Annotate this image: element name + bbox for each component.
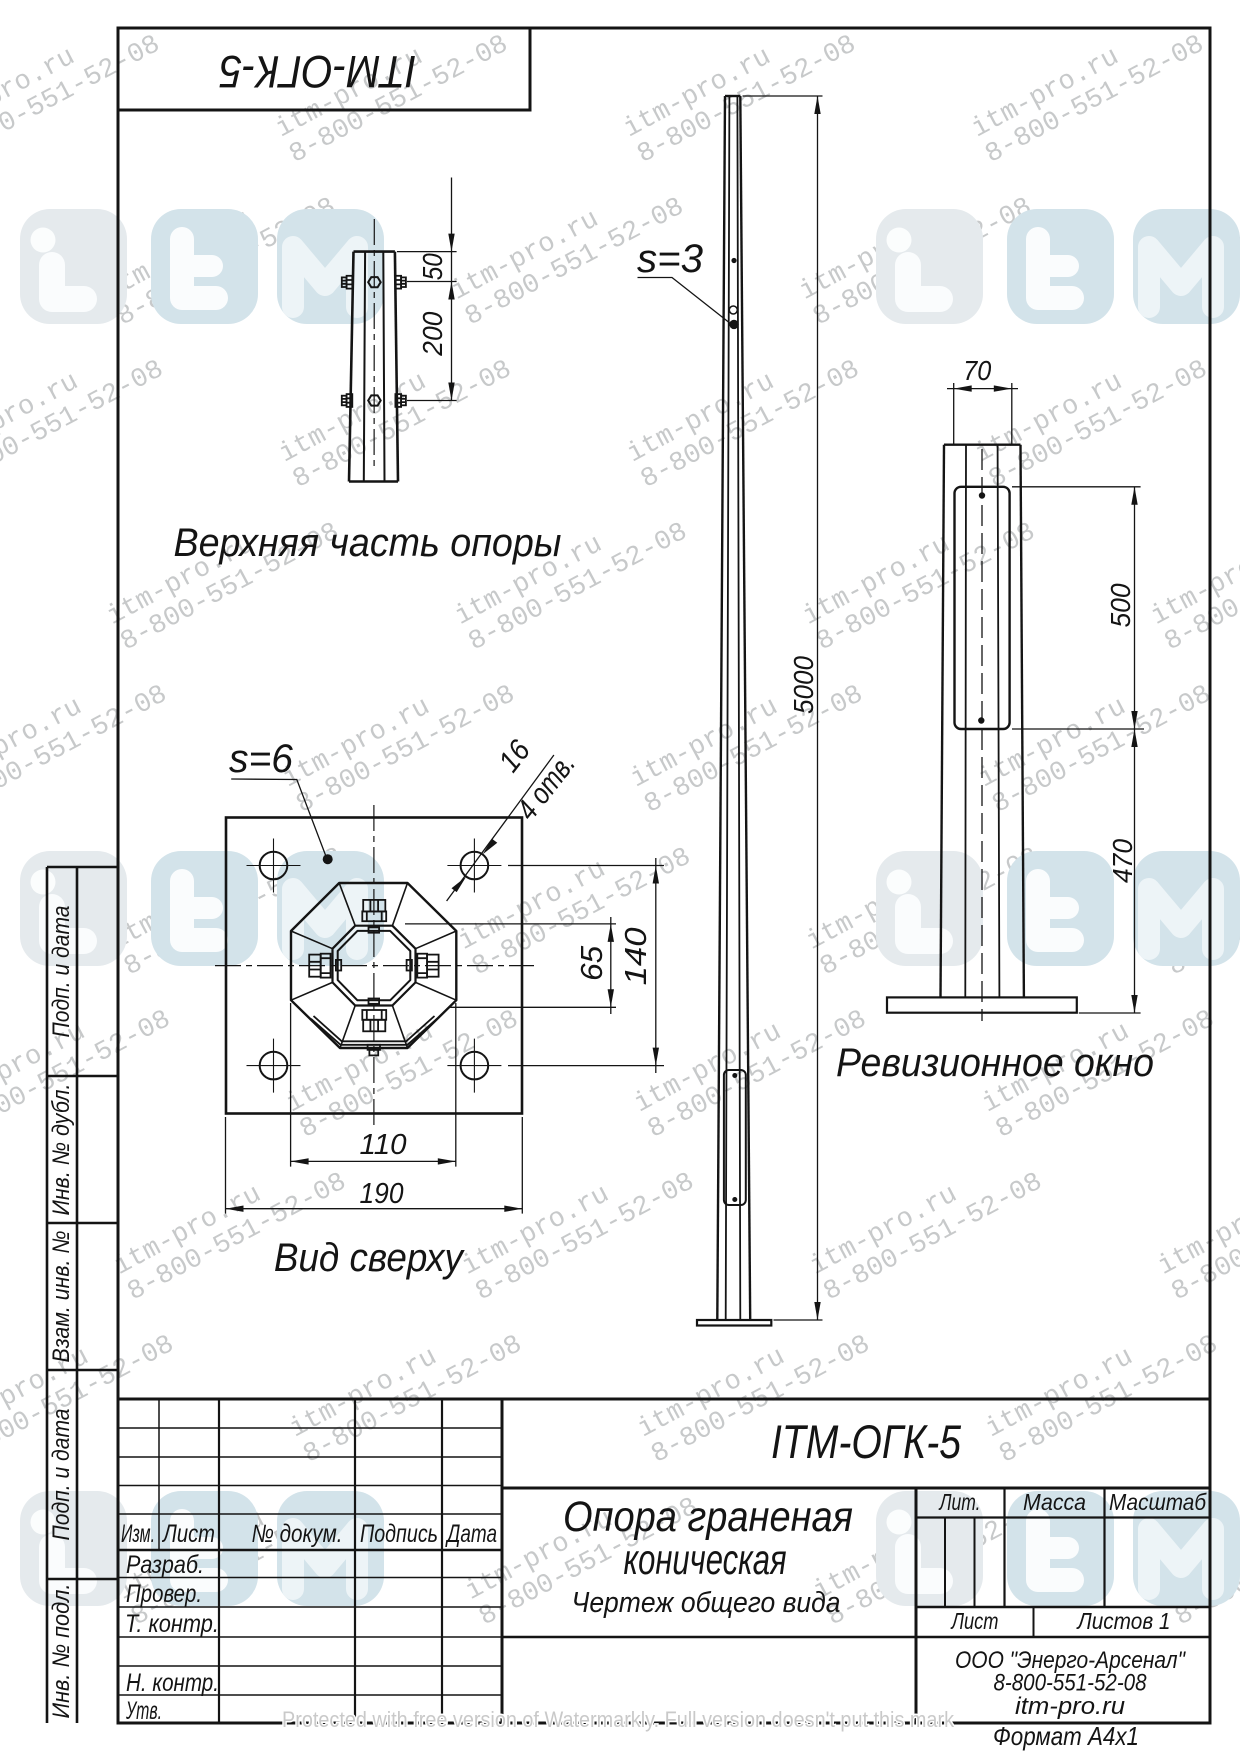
svg-text:Формат А4х1: Формат А4х1 [993,1721,1139,1751]
svg-text:s=3: s=3 [637,237,703,281]
svg-text:Лист: Лист [950,1608,999,1634]
svg-text:Подп. и дата: Подп. и дата [48,906,75,1038]
svg-text:Изм.: Изм. [121,1520,155,1548]
svg-text:200: 200 [417,311,448,356]
svg-text:190: 190 [360,1178,404,1210]
svg-text:Листов 1: Листов 1 [1076,1608,1171,1634]
svg-text:Т. контр.: Т. контр. [125,1610,219,1638]
svg-text:470: 470 [1107,839,1138,883]
svg-text:Protected with free version of: Protected with free version of Watermark… [282,1707,955,1732]
svg-text:65: 65 [574,945,609,981]
svg-text:Лит.: Лит. [938,1489,981,1515]
svg-text:Вид сверху: Вид сверху [274,1236,466,1280]
svg-text:110: 110 [360,1129,407,1161]
svg-text:Утв.: Утв. [125,1697,162,1725]
svg-text:140: 140 [618,927,653,985]
svg-text:коническая: коническая [624,1536,787,1584]
svg-text:70: 70 [963,355,991,386]
svg-text:Опора граненая: Опора граненая [563,1493,853,1541]
svg-text:№ докум.: № докум. [252,1520,343,1548]
svg-text:500: 500 [1105,583,1136,627]
svg-text:Разраб.: Разраб. [126,1551,204,1579]
svg-text:Инв. № дубл.: Инв. № дубл. [48,1084,75,1216]
svg-text:ITM-ОГК-5: ITM-ОГК-5 [219,46,417,97]
svg-text:Провер.: Провер. [126,1580,202,1608]
svg-text:Н. контр.: Н. контр. [126,1669,219,1697]
svg-text:5000: 5000 [788,656,819,714]
svg-text:Инв. № подл.: Инв. № подл. [48,1584,75,1719]
svg-text:Взам. инв. №: Взам. инв. № [48,1231,75,1363]
svg-text:Чертеж общего вида: Чертеж общего вида [572,1587,841,1619]
svg-text:ITM-ОГК-5: ITM-ОГК-5 [771,1415,962,1468]
svg-text:Дата: Дата [445,1520,497,1548]
svg-text:50: 50 [417,253,448,280]
svg-text:Подп. и дата: Подп. и дата [48,1409,75,1541]
svg-text:Масштаб: Масштаб [1109,1489,1207,1515]
svg-text:s=6: s=6 [229,737,294,781]
svg-text:Масса: Масса [1023,1489,1086,1515]
svg-text:itm-pro.ru: itm-pro.ru [1015,1693,1125,1720]
svg-text:Подпись: Подпись [360,1520,438,1548]
svg-text:Ревизионное окно: Ревизионное окно [836,1041,1154,1085]
svg-text:Верхняя часть опоры: Верхняя часть опоры [174,521,562,565]
svg-text:Лист: Лист [161,1520,215,1548]
